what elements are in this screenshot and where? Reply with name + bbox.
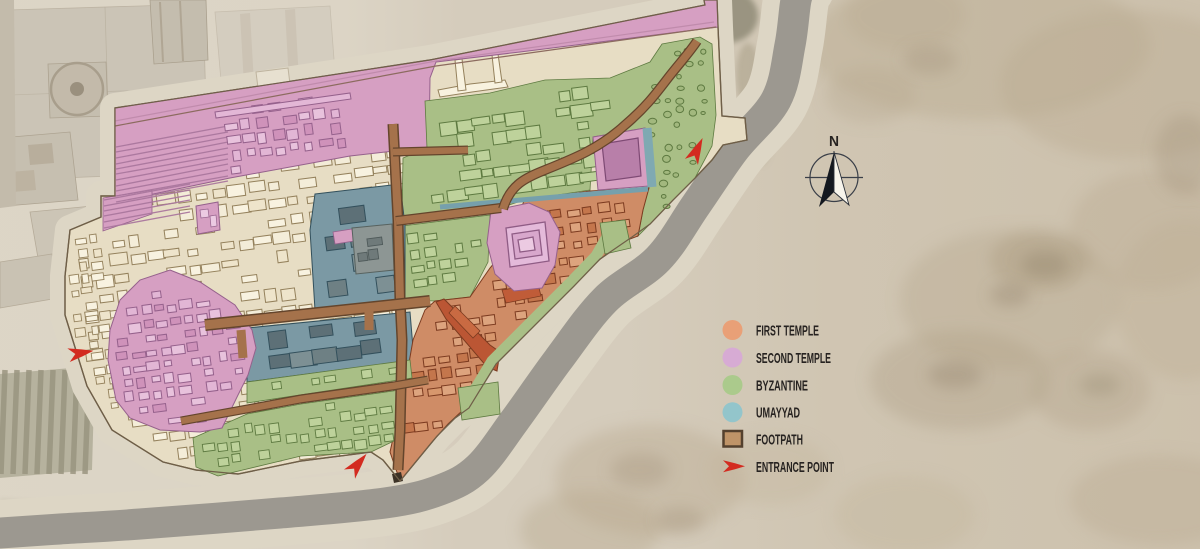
svg-text:FIRST TEMPLE: FIRST TEMPLE: [756, 323, 819, 340]
svg-text:BYZANTINE: BYZANTINE: [756, 378, 808, 395]
svg-text:ENTRANCE POINT: ENTRANCE POINT: [756, 459, 834, 476]
svg-text:N: N: [829, 134, 839, 150]
svg-text:FOOTPATH: FOOTPATH: [756, 432, 803, 449]
svg-text:SECOND TEMPLE: SECOND TEMPLE: [756, 350, 831, 367]
svg-text:UMAYYAD: UMAYYAD: [756, 405, 800, 422]
